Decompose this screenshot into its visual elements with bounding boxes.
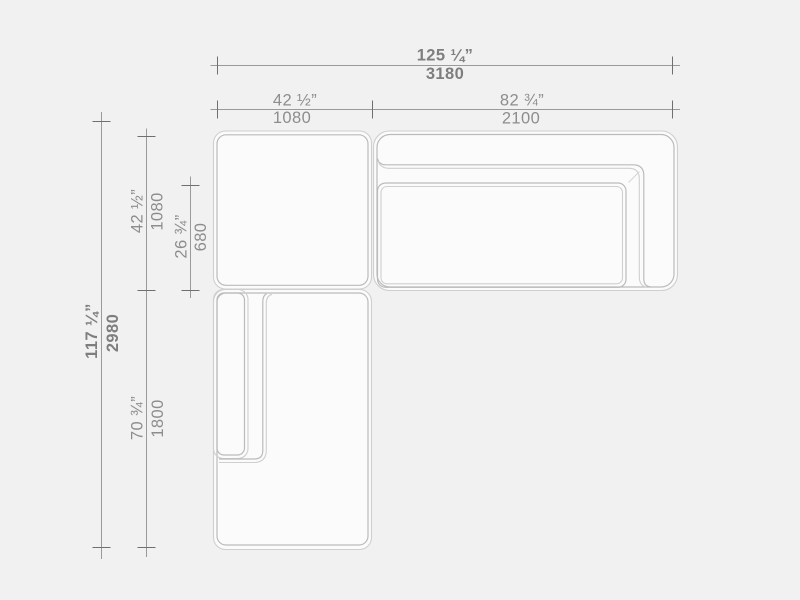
svg-text:1080: 1080 (149, 192, 167, 230)
svg-text:82 ¾”: 82 ¾” (500, 92, 544, 110)
svg-text:125 ¼”: 125 ¼” (417, 47, 474, 65)
svg-text:42 ½”: 42 ½” (273, 92, 317, 110)
svg-text:2100: 2100 (502, 110, 540, 128)
svg-text:1080: 1080 (273, 109, 311, 127)
svg-text:3180: 3180 (426, 65, 464, 83)
svg-text:680: 680 (192, 223, 210, 252)
svg-text:1800: 1800 (149, 399, 167, 437)
svg-text:42 ½”: 42 ½” (129, 189, 147, 233)
svg-text:117 ¼”: 117 ¼” (83, 303, 101, 359)
svg-text:26 ¾”: 26 ¾” (173, 214, 191, 258)
svg-text:70 ¾”: 70 ¾” (129, 396, 147, 440)
svg-text:2980: 2980 (104, 314, 122, 352)
